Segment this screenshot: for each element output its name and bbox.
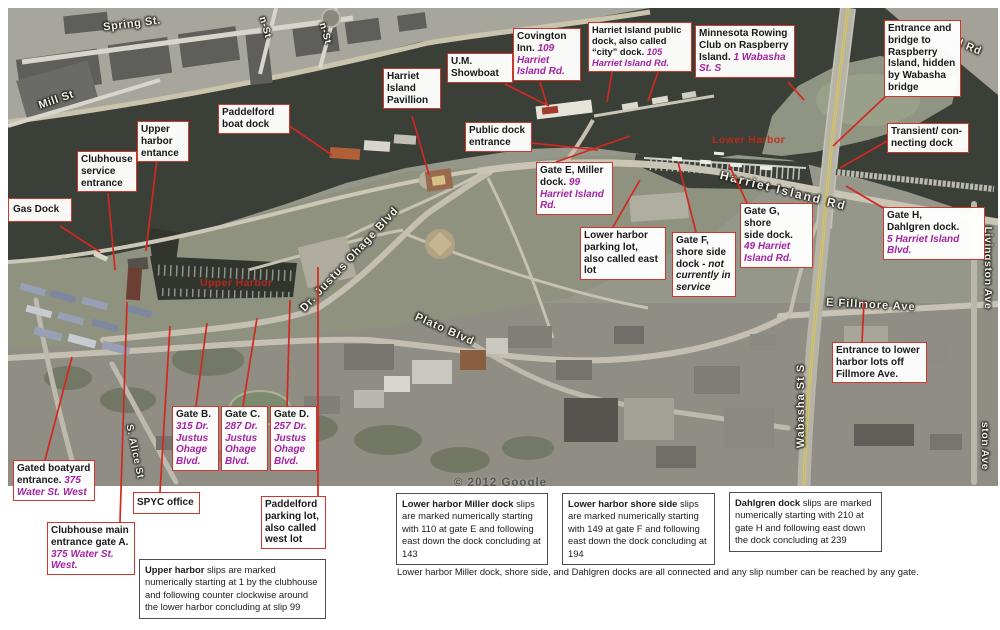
callout-text: Upper harbor entance — [141, 124, 179, 159]
callout-gate-f-shore-side-dock: Gate F, shore side dock - not currently … — [672, 232, 736, 297]
docks-connected-footnote: Lower harbor Miller dock, shore side, an… — [397, 566, 919, 577]
callout-gate-b: Gate B. 315 Dr. Justus Ohage Blvd. — [172, 406, 219, 471]
callout-text: Entrance to lower harbor lots off Fillmo… — [836, 345, 920, 380]
callout-raspberry-island-entrance: Entrance and bridge to Raspberry Island,… — [884, 20, 961, 97]
callout-text: Entrance and bridge to Raspberry Island,… — [888, 23, 955, 93]
note-lead: Dahlgren dock — [735, 497, 800, 508]
callout-address: 287 Dr. Justus Ohage Blvd. — [225, 421, 258, 467]
note-shore-side-slips: Lower harbor shore side slips are marked… — [562, 493, 715, 565]
callout-text: Public dock entrance — [469, 125, 525, 148]
callout-text: Gate H, Dahlgren dock. — [887, 210, 959, 233]
callout-spyc-office: SPYC office — [133, 492, 200, 514]
callout-public-dock-entrance: Public dock entrance — [465, 122, 532, 152]
callout-text: Transient/ con- necting dock — [891, 126, 962, 149]
callout-address: 375 Water St. West. — [51, 549, 114, 572]
area-label-lower-harbor: Lower Harbor — [712, 134, 785, 146]
callout-text: U.M. Showboat — [451, 56, 499, 79]
callout-text: Paddelford boat dock — [222, 107, 274, 130]
callout-text: Gate G, shore side dock. — [744, 206, 793, 241]
callout-upper-harbor-entrance: Upper harbor entance — [137, 121, 189, 162]
note-miller-dock-slips: Lower harbor Miller dock slips are marke… — [396, 493, 548, 565]
callout-text: Clubhouse service entrance — [81, 154, 133, 189]
callout-minnesota-rowing-club: Minnesota Rowing Club on Raspberry Islan… — [695, 25, 795, 78]
callout-gate-h-dahlgren-dock: Gate H, Dahlgren dock. 5 Harriet Island … — [883, 207, 985, 260]
street-label-livingston-ave-partial: ston Ave — [979, 421, 991, 471]
callout-text: Paddelford parking lot, also called west… — [265, 499, 319, 545]
callout-harriet-island-pavillion: Harriet Island Pavillion — [383, 68, 441, 109]
callout-text: Harriet Island public dock, also called … — [592, 25, 681, 57]
street-label-wabasha-st-s: Wabasha St S — [795, 354, 807, 458]
callout-text: Gate D. — [274, 409, 309, 420]
annotated-marina-map-page: Spring St. Mill St n-St n-St d Rd Dr. Ju… — [0, 0, 1000, 630]
callout-address: 49 Harriet Island Rd. — [744, 241, 792, 264]
callout-paddelford-boat-dock: Paddelford boat dock — [218, 104, 290, 134]
note-dahlgren-dock-slips: Dahlgren dock slips are marked numerical… — [729, 492, 882, 552]
callout-covington-inn: Covington Inn. 109 Harriet Island Rd. — [513, 28, 581, 81]
note-lead: Lower harbor shore side — [568, 498, 677, 509]
map-copyright: © 2012 Google — [454, 477, 547, 486]
callout-harriet-island-public-dock: Harriet Island public dock, also called … — [588, 22, 692, 72]
callout-text: Gas Dock — [13, 204, 59, 215]
callout-clubhouse-main-entrance: Clubhouse main entrance gate A. 375 Wate… — [47, 522, 135, 575]
area-label-upper-harbor: Upper Harbor — [200, 277, 272, 289]
callout-lower-harbor-parking-lot: Lower harbor parking lot, also called ea… — [580, 227, 666, 280]
note-lead: Lower harbor Miller dock — [402, 498, 513, 509]
callout-text: Gate B. — [176, 409, 211, 420]
callout-um-showboat: U.M. Showboat — [447, 53, 513, 83]
callout-text: SPYC office — [137, 497, 194, 508]
note-lead: Upper harbor — [145, 564, 204, 575]
callout-address: 257 Dr. Justus Ohage Blvd. — [274, 421, 307, 467]
callout-clubhouse-service-entrance: Clubhouse service entrance — [77, 151, 137, 192]
callout-text: Gate C. — [225, 409, 260, 420]
callout-gate-e-miller-dock: Gate E, Miller dock. 99 Harriet Island R… — [536, 162, 613, 215]
callout-gated-boatyard-entrance: Gated boatyard entrance. 375 Water St. W… — [13, 460, 95, 501]
callout-gate-g-shore-side-dock: Gate G, shore side dock. 49 Harriet Isla… — [740, 203, 813, 268]
callout-fillmore-entrance: Entrance to lower harbor lots off Fillmo… — [832, 342, 927, 383]
callout-paddelford-parking-lot: Paddelford parking lot, also called west… — [261, 496, 326, 549]
callout-gate-c: Gate C. 287 Dr. Justus Ohage Blvd. — [221, 406, 268, 471]
callout-address: 5 Harriet Island Blvd. — [887, 234, 959, 257]
callout-address: 315 Dr. Justus Ohage Blvd. — [176, 421, 209, 467]
callout-text: Lower harbor parking lot, also called ea… — [584, 230, 658, 276]
callout-transient-connecting-dock: Transient/ con- necting dock — [887, 123, 969, 153]
callout-text: Clubhouse main entrance gate A. — [51, 525, 129, 548]
callout-gate-d: Gate D. 257 Dr. Justus Ohage Blvd. — [270, 406, 317, 471]
callout-gas-dock: Gas Dock — [8, 198, 72, 222]
callout-text: Harriet Island Pavillion — [387, 71, 428, 106]
note-upper-harbor-slips: Upper harbor slips are marked numericall… — [139, 559, 326, 619]
